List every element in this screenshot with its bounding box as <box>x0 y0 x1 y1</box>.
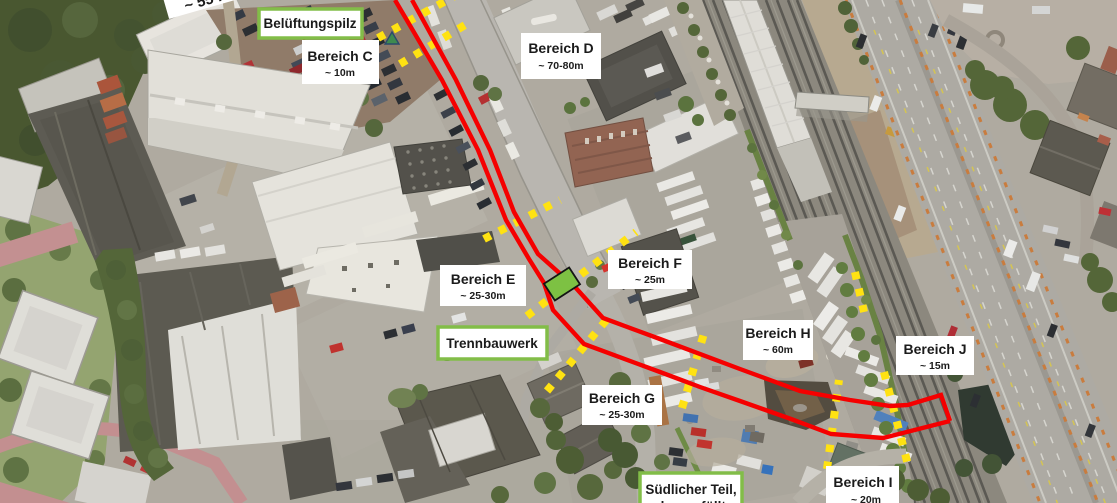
svg-text:~ 10m: ~ 10m <box>325 67 355 79</box>
svg-text:~ 20m: ~ 20m <box>851 494 881 503</box>
svg-text:~ 25-30m: ~ 25-30m <box>460 290 505 302</box>
svg-text:Südlicher Teil,: Südlicher Teil, <box>645 482 736 497</box>
svg-text:Trennbauwerk: Trennbauwerk <box>446 336 538 351</box>
svg-text:Belüftungspilz: Belüftungspilz <box>264 16 357 31</box>
svg-text:~ 25-30m: ~ 25-30m <box>599 409 644 421</box>
svg-text:~ 70-80m: ~ 70-80m <box>538 60 583 72</box>
svg-text:~ 25m: ~ 25m <box>635 274 665 286</box>
svg-text:Bereich G: Bereich G <box>589 390 655 406</box>
svg-text:Bereich C: Bereich C <box>307 48 372 64</box>
svg-text:~ 15m: ~ 15m <box>920 360 950 372</box>
svg-text:Bereich H: Bereich H <box>745 325 810 341</box>
svg-text:Bereich D: Bereich D <box>528 40 593 56</box>
svg-text:Bereich J: Bereich J <box>903 341 966 357</box>
svg-text:Bereich F: Bereich F <box>618 255 682 271</box>
svg-text:Bereich E: Bereich E <box>451 271 516 287</box>
svg-text:der verfüllt: der verfüllt <box>656 499 726 503</box>
svg-text:Bereich I: Bereich I <box>833 474 892 490</box>
svg-text:~ 60m: ~ 60m <box>763 344 793 356</box>
